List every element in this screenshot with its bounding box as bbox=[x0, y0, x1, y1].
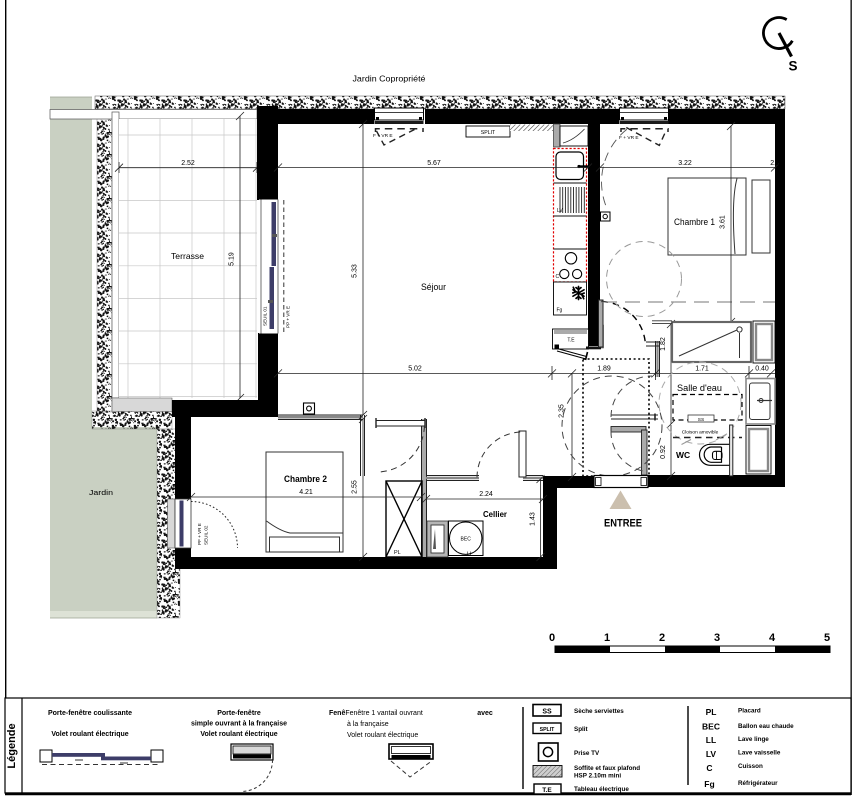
svg-text:LL: LL bbox=[706, 735, 716, 745]
svg-text:SPLIT: SPLIT bbox=[481, 130, 496, 136]
svg-text:HSP 2.10m mini: HSP 2.10m mini bbox=[574, 773, 621, 780]
svg-text:3.61: 3.61 bbox=[720, 215, 727, 229]
svg-text:Légende: Légende bbox=[6, 723, 18, 768]
svg-text:Ballon eau chaude: Ballon eau chaude bbox=[738, 723, 794, 730]
svg-text:ENTREE: ENTREE bbox=[604, 518, 642, 530]
svg-text:Jardin: Jardin bbox=[89, 488, 113, 497]
svg-text:2.52: 2.52 bbox=[181, 160, 195, 167]
svg-text:Salle d'eau: Salle d'eau bbox=[677, 383, 722, 393]
svg-text:5: 5 bbox=[824, 632, 830, 644]
svg-text:5.19: 5.19 bbox=[229, 252, 236, 266]
svg-text:Cloison amovible: Cloison amovible bbox=[682, 430, 719, 436]
svg-text:5.33: 5.33 bbox=[352, 264, 359, 278]
svg-text:C: C bbox=[556, 274, 560, 280]
svg-text:SEUIL 01: SEUIL 01 bbox=[263, 306, 268, 326]
svg-text:2.53: 2.53 bbox=[770, 160, 784, 167]
svg-text:Réfrigérateur: Réfrigérateur bbox=[738, 780, 778, 787]
svg-text:BEC: BEC bbox=[461, 537, 472, 543]
svg-text:Cellier: Cellier bbox=[483, 509, 508, 519]
svg-text:PL: PL bbox=[706, 707, 717, 717]
svg-text:5.67: 5.67 bbox=[427, 160, 441, 167]
svg-text:SS: SS bbox=[542, 709, 552, 716]
svg-text:LV: LV bbox=[557, 208, 563, 214]
svg-text:5.02: 5.02 bbox=[408, 366, 422, 373]
svg-text:1: 1 bbox=[604, 632, 610, 644]
svg-text:Split: Split bbox=[574, 726, 589, 733]
svg-text:4.21: 4.21 bbox=[299, 489, 313, 496]
svg-text:Tableau électrique: Tableau électrique bbox=[574, 786, 629, 793]
svg-text:BEC: BEC bbox=[702, 722, 720, 732]
svg-text:Terrasse: Terrasse bbox=[171, 251, 204, 261]
svg-text:T.E: T.E bbox=[567, 338, 575, 344]
svg-text:2.55: 2.55 bbox=[352, 480, 359, 494]
svg-text:F + VR E: F + VR E bbox=[373, 133, 393, 139]
svg-text:SPLIT: SPLIT bbox=[540, 727, 556, 733]
svg-text:Séjour: Séjour bbox=[421, 282, 446, 292]
svg-text:Lave linge: Lave linge bbox=[738, 736, 769, 743]
svg-text:Porte-fenêtre: Porte-fenêtre bbox=[217, 710, 261, 717]
svg-text:Chambre 2: Chambre 2 bbox=[284, 474, 327, 484]
svg-text:Chambre 1: Chambre 1 bbox=[674, 217, 715, 227]
svg-text:simple ouvrant à la française: simple ouvrant à la française bbox=[191, 721, 287, 728]
svg-text:3: 3 bbox=[714, 632, 720, 644]
svg-text:Volet roulant électrique: Volet roulant électrique bbox=[51, 731, 128, 738]
svg-text:0: 0 bbox=[549, 632, 555, 644]
svg-text:Soffite et faux plafond: Soffite et faux plafond bbox=[574, 765, 640, 772]
svg-text:4: 4 bbox=[769, 632, 776, 644]
svg-text:PP + VR E: PP + VR E bbox=[286, 306, 291, 328]
svg-text:LL: LL bbox=[467, 552, 473, 558]
svg-text:Volet roulant électrique: Volet roulant électrique bbox=[200, 731, 277, 738]
svg-text:T.E: T.E bbox=[542, 787, 552, 794]
svg-text:1.82: 1.82 bbox=[660, 337, 667, 351]
svg-text:Porte-fenêtre coulissante: Porte-fenêtre coulissante bbox=[48, 710, 132, 717]
svg-text:Fg: Fg bbox=[704, 779, 714, 789]
svg-text:1.43: 1.43 bbox=[530, 512, 537, 526]
svg-text:Sèche serviettes: Sèche serviettes bbox=[574, 708, 624, 715]
svg-text:Lave vaisselle: Lave vaisselle bbox=[738, 750, 781, 757]
svg-text:Prise TV: Prise TV bbox=[574, 750, 600, 757]
svg-text:1.71: 1.71 bbox=[695, 366, 709, 373]
svg-text:Placard: Placard bbox=[738, 708, 761, 715]
svg-text:Cuisson: Cuisson bbox=[738, 763, 763, 770]
svg-text:à la française: à la française bbox=[347, 721, 389, 728]
svg-text:0.40: 0.40 bbox=[755, 366, 769, 373]
svg-text:S: S bbox=[788, 59, 797, 74]
svg-text:Fg: Fg bbox=[557, 308, 563, 314]
svg-text:2: 2 bbox=[659, 632, 665, 644]
svg-text:3.22: 3.22 bbox=[678, 160, 692, 167]
svg-text:0.92: 0.92 bbox=[660, 445, 667, 459]
svg-text:LV: LV bbox=[706, 749, 717, 759]
svg-text:SS: SS bbox=[698, 417, 704, 423]
svg-text:PL: PL bbox=[394, 550, 401, 556]
svg-text:2.24: 2.24 bbox=[479, 491, 493, 498]
svg-text:F + VR E: F + VR E bbox=[619, 135, 639, 141]
svg-text:FenêFenêtre 1 vantail ouvrant: FenêFenêtre 1 vantail ouvrant bbox=[329, 710, 423, 717]
svg-text:1.89: 1.89 bbox=[597, 366, 611, 373]
svg-text:C: C bbox=[706, 763, 712, 773]
svg-text:SEUIL 02: SEUIL 02 bbox=[204, 525, 209, 545]
svg-text:PF + VR E: PF + VR E bbox=[197, 523, 202, 545]
svg-text:Volet roulant électrique: Volet roulant électrique bbox=[347, 732, 418, 739]
svg-text:WC: WC bbox=[676, 450, 690, 460]
svg-text:Jardin Copropriété: Jardin Copropriété bbox=[353, 74, 426, 84]
svg-text:avec: avec bbox=[477, 710, 493, 717]
